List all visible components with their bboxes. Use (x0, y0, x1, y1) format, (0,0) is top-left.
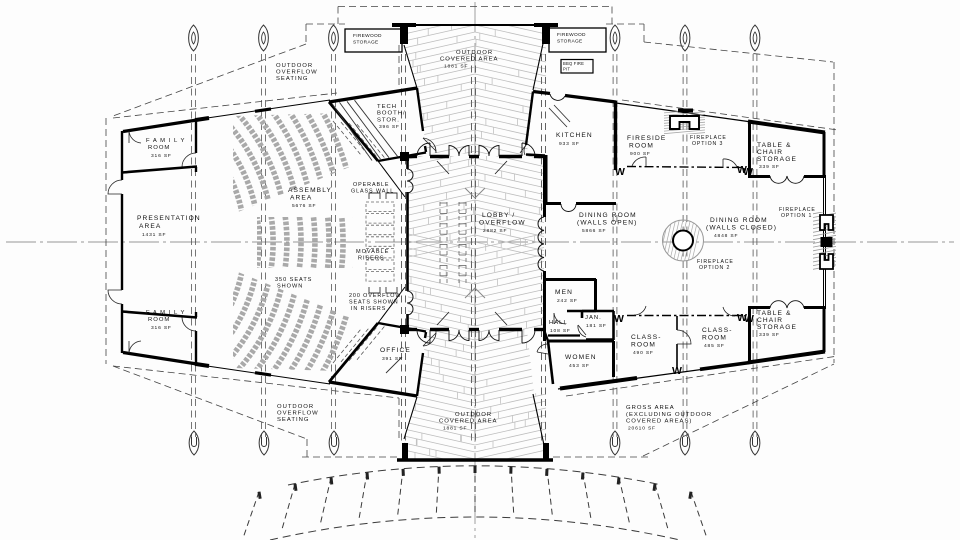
svg-text:GLASS WALL: GLASS WALL (351, 188, 394, 194)
svg-text:LOBBY /: LOBBY / (482, 212, 515, 219)
svg-text:490 SF: 490 SF (633, 350, 654, 356)
svg-text:STOR.: STOR. (377, 117, 400, 123)
svg-text:181 SF: 181 SF (586, 323, 607, 329)
svg-text:108 SF: 108 SF (550, 328, 571, 334)
svg-text:339 SF: 339 SF (759, 164, 780, 170)
svg-text:CLASS-: CLASS- (631, 334, 662, 341)
svg-text:SHOWN: SHOWN (277, 284, 303, 290)
svg-text:1431 SF: 1431 SF (142, 232, 166, 238)
svg-text:AREA: AREA (139, 223, 161, 230)
svg-text:242 SF: 242 SF (557, 298, 578, 304)
svg-text:KITCHEN: KITCHEN (556, 132, 593, 139)
svg-text:339 SF: 339 SF (759, 332, 780, 338)
svg-text:TABLE &: TABLE & (757, 310, 791, 317)
svg-text:SEATS SHOWN: SEATS SHOWN (349, 299, 399, 305)
svg-text:200 OVERFLOW: 200 OVERFLOW (349, 293, 401, 299)
svg-text:OUTDOOR: OUTDOOR (276, 63, 313, 69)
svg-text:OUTDOOR: OUTDOOR (456, 50, 493, 56)
svg-text:BBQ FIRE: BBQ FIRE (563, 61, 584, 66)
svg-text:(WALLS CLOSED): (WALLS CLOSED) (706, 224, 777, 231)
svg-text:350 SEATS: 350 SEATS (275, 277, 312, 283)
svg-text:FIRESIDE: FIRESIDE (627, 135, 666, 142)
svg-text:OUTDOOR: OUTDOOR (455, 412, 492, 418)
svg-text:IN RISERS: IN RISERS (351, 306, 386, 312)
svg-text:1881 SF: 1881 SF (444, 64, 468, 70)
svg-text:ROOM: ROOM (702, 334, 727, 341)
svg-text:453 SF: 453 SF (569, 363, 590, 369)
svg-text:MOVABLE: MOVABLE (356, 249, 389, 255)
svg-text:SEATING: SEATING (277, 417, 309, 423)
svg-text:5676 SF: 5676 SF (292, 203, 316, 209)
svg-text:OFFICE: OFFICE (380, 347, 411, 354)
svg-text:COVERED AREA: COVERED AREA (439, 419, 497, 425)
svg-text:F A M I L Y: F A M I L Y (146, 310, 185, 316)
svg-text:OPTION 2: OPTION 2 (699, 265, 730, 271)
svg-text:GROSS AREA: GROSS AREA (626, 405, 675, 411)
svg-text:ROOM: ROOM (148, 317, 170, 323)
svg-text:(WALLS OPEN): (WALLS OPEN) (577, 219, 637, 226)
svg-text:316 SF: 316 SF (151, 153, 172, 159)
svg-text:W: W (737, 164, 747, 176)
svg-text:RISERS: RISERS (358, 256, 385, 262)
svg-text:PRESENTATION: PRESENTATION (137, 215, 201, 222)
svg-text:OVERFLOW: OVERFLOW (276, 70, 318, 76)
svg-text:FIREWOOD: FIREWOOD (353, 33, 382, 39)
svg-text:1881 SF: 1881 SF (443, 426, 467, 432)
svg-text:OPTION 3: OPTION 3 (692, 141, 723, 147)
svg-text:20610 SF: 20610 SF (628, 425, 656, 431)
svg-text:CHAIR: CHAIR (757, 317, 783, 324)
svg-text:W: W (614, 313, 624, 325)
svg-text:ROOM: ROOM (629, 142, 654, 149)
svg-text:(EXCLUDING OUTDOOR: (EXCLUDING OUTDOOR (626, 412, 712, 418)
svg-text:COVERED AREAS): COVERED AREAS) (626, 419, 692, 425)
svg-text:900 SF: 900 SF (630, 151, 651, 157)
svg-text:OVERFLOW: OVERFLOW (277, 411, 319, 417)
svg-text:STORAGE: STORAGE (557, 39, 582, 45)
svg-text:ROOM: ROOM (631, 341, 656, 348)
svg-text:HALL: HALL (549, 320, 568, 326)
svg-text:DINING ROOM: DINING ROOM (579, 212, 637, 219)
svg-text:JAN.: JAN. (585, 315, 602, 321)
svg-text:WOMEN: WOMEN (565, 354, 597, 361)
svg-text:391 SF: 391 SF (382, 356, 403, 362)
svg-text:ROOM: ROOM (148, 145, 170, 151)
svg-text:2882 SF: 2882 SF (483, 228, 507, 234)
svg-text:BOOTH/: BOOTH/ (377, 111, 406, 117)
svg-text:TECH: TECH (377, 104, 397, 110)
svg-text:DINING ROOM: DINING ROOM (710, 217, 768, 224)
svg-text:TABLE &: TABLE & (757, 142, 791, 149)
svg-text:OPERABLE: OPERABLE (353, 182, 389, 188)
svg-text:COVERED AREA: COVERED AREA (440, 57, 498, 63)
svg-text:CLASS-: CLASS- (702, 327, 733, 334)
svg-text:ASSEMBLY: ASSEMBLY (288, 187, 332, 194)
svg-text:STORAGE: STORAGE (757, 156, 797, 163)
svg-text:SEATING: SEATING (276, 76, 308, 82)
svg-text:4848 SF: 4848 SF (714, 233, 738, 239)
svg-text:FIREWOOD: FIREWOOD (557, 32, 586, 38)
svg-text:CHAIR: CHAIR (757, 149, 783, 156)
svg-text:STORAGE: STORAGE (757, 324, 797, 331)
svg-text:MEN: MEN (555, 289, 573, 296)
svg-text:STORAGE: STORAGE (353, 40, 378, 46)
svg-text:OPTION 1: OPTION 1 (781, 213, 812, 219)
svg-text:W: W (744, 313, 754, 325)
svg-text:5866 SF: 5866 SF (582, 228, 606, 234)
svg-text:W: W (615, 166, 625, 178)
svg-text:316 SF: 316 SF (151, 325, 172, 331)
svg-text:396 SF: 396 SF (379, 124, 400, 130)
svg-text:OVERFLOW: OVERFLOW (479, 219, 526, 226)
svg-text:933 SF: 933 SF (559, 141, 580, 147)
svg-text:PIT: PIT (563, 67, 570, 72)
svg-text:W: W (672, 365, 682, 377)
svg-text:F A M I L Y: F A M I L Y (146, 138, 185, 144)
svg-text:OUTDOOR: OUTDOOR (277, 404, 314, 410)
svg-text:485 SF: 485 SF (704, 343, 725, 349)
svg-text:AREA: AREA (290, 195, 312, 202)
